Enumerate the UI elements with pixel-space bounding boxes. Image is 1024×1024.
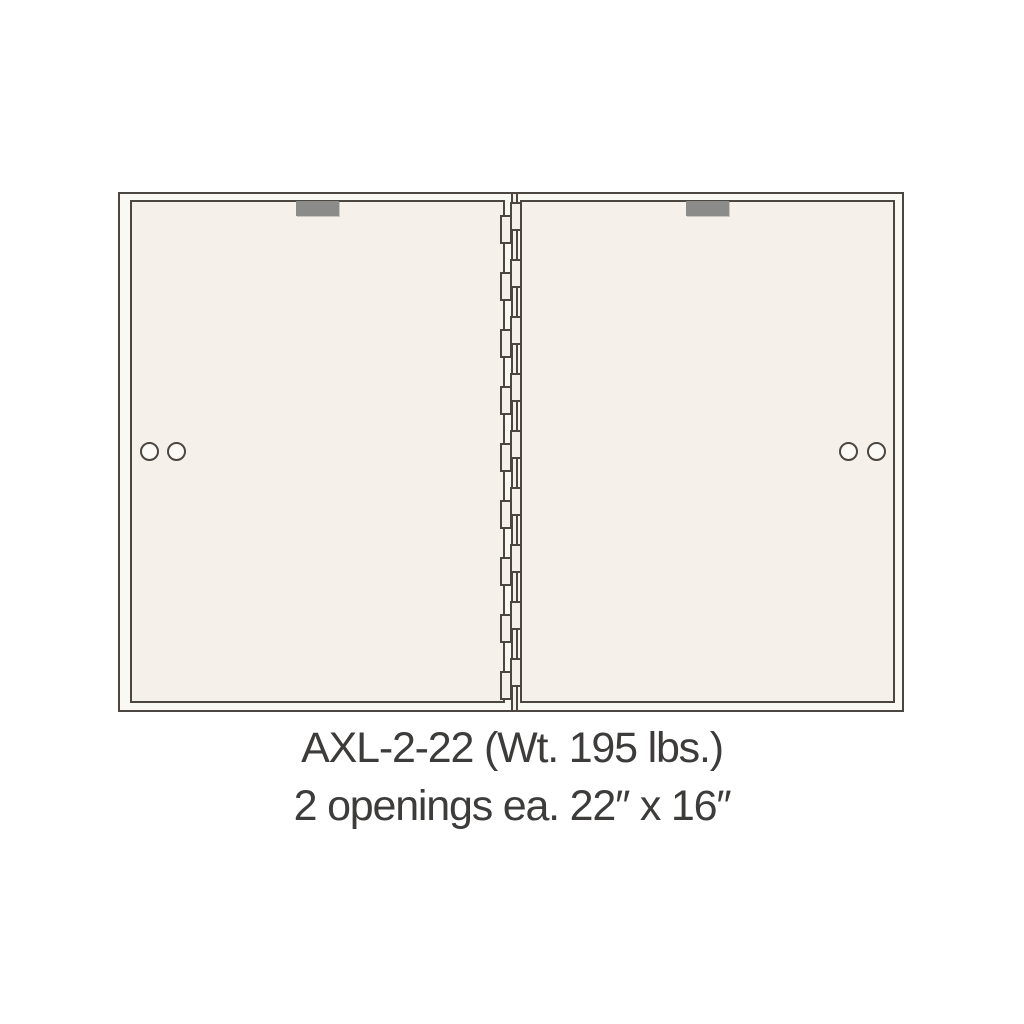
- hinge-knuckle: [500, 386, 512, 415]
- hinge-knuckle: [500, 272, 512, 301]
- hinge-knuckle: [500, 443, 512, 472]
- caption: AXL-2-22 (Wt. 195 lbs.) 2 openings ea. 2…: [0, 719, 1024, 835]
- door-right: [520, 200, 895, 703]
- cabinet-frame: [118, 192, 904, 712]
- door-left-lock-hole-1: [140, 442, 159, 461]
- caption-openings: 2 openings ea. 22″ x 16″: [0, 777, 1024, 835]
- hinge-knuckle: [500, 671, 512, 700]
- hinge-knuckle: [500, 329, 512, 358]
- door-right-lock-hole-2: [867, 442, 886, 461]
- door-right-lock-hole-1: [839, 442, 858, 461]
- product-diagram: AXL-2-22 (Wt. 195 lbs.) 2 openings ea. 2…: [0, 0, 1024, 1024]
- hinge-knuckle: [500, 557, 512, 586]
- door-left: [130, 200, 505, 703]
- hinge-knuckle: [500, 500, 512, 529]
- door-left-lock-hole-2: [167, 442, 186, 461]
- hinge-knuckle: [500, 614, 512, 643]
- door-left-label-plate: [296, 201, 339, 216]
- hinge-knuckle: [500, 215, 512, 244]
- caption-model: AXL-2-22 (Wt. 195 lbs.): [0, 719, 1024, 777]
- door-right-label-plate: [686, 201, 729, 216]
